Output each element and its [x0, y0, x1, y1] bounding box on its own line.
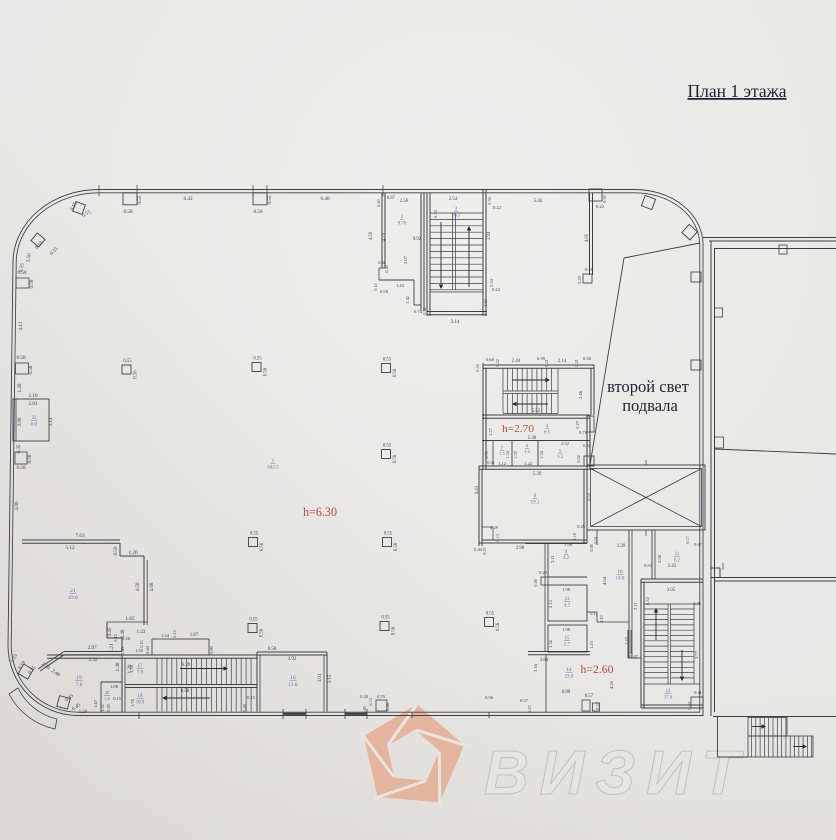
- svg-text:0.20: 0.20: [539, 570, 548, 575]
- svg-text:0.49: 0.49: [106, 704, 111, 711]
- svg-text:0.57: 0.57: [595, 701, 600, 709]
- svg-text:0.55: 0.55: [123, 359, 132, 364]
- svg-text:4.79: 4.79: [382, 232, 387, 241]
- svg-text:0.55: 0.55: [249, 618, 258, 623]
- svg-text:2.15: 2.15: [548, 599, 553, 608]
- svg-text:3.14: 3.14: [451, 320, 460, 325]
- svg-text:0.50: 0.50: [602, 194, 607, 202]
- svg-text:2.7: 2.7: [564, 642, 571, 647]
- svg-text:0.87: 0.87: [387, 196, 396, 201]
- svg-text:0.58: 0.58: [27, 454, 33, 463]
- svg-text:1.48: 1.48: [115, 662, 121, 671]
- svg-text:0.58: 0.58: [253, 209, 262, 215]
- svg-text:1.22: 1.22: [624, 637, 629, 645]
- svg-text:1.33: 1.33: [100, 704, 105, 711]
- svg-text:h=2.60: h=2.60: [581, 664, 614, 676]
- svg-text:0.56: 0.56: [485, 695, 494, 700]
- svg-text:0.17: 0.17: [685, 535, 690, 543]
- svg-text:0.13: 0.13: [495, 534, 500, 542]
- svg-text:0.81: 0.81: [644, 563, 653, 568]
- svg-text:43.6: 43.6: [68, 595, 78, 601]
- svg-text:2.14: 2.14: [558, 359, 567, 364]
- svg-text:0.56: 0.56: [496, 622, 501, 631]
- svg-text:0.50: 0.50: [475, 363, 480, 371]
- svg-text:2.11: 2.11: [633, 601, 638, 610]
- svg-text:4.06: 4.06: [14, 501, 20, 510]
- svg-text:1.34: 1.34: [161, 633, 170, 638]
- svg-text:0.54: 0.54: [489, 278, 494, 286]
- svg-text:1.42: 1.42: [405, 296, 410, 304]
- svg-text:23.0: 23.0: [565, 675, 574, 680]
- svg-text:0.27: 0.27: [575, 420, 580, 428]
- svg-text:0.34: 0.34: [583, 443, 591, 448]
- svg-text:1.67: 1.67: [190, 633, 199, 638]
- svg-text:5.52: 5.52: [532, 409, 541, 414]
- svg-text:0.40: 0.40: [693, 601, 701, 606]
- svg-text:0.15: 0.15: [113, 696, 120, 701]
- svg-text:0.22: 0.22: [493, 205, 502, 210]
- svg-text:0.50: 0.50: [113, 546, 119, 555]
- svg-text:0.52: 0.52: [576, 455, 581, 463]
- svg-text:1.43: 1.43: [396, 283, 405, 288]
- svg-text:0.40: 0.40: [384, 265, 389, 273]
- svg-text:4.50: 4.50: [135, 582, 141, 591]
- svg-text:3.92: 3.92: [288, 657, 297, 662]
- svg-text:0.80: 0.80: [562, 690, 571, 695]
- svg-text:0.18: 0.18: [572, 533, 577, 541]
- svg-text:5.42: 5.42: [534, 199, 543, 204]
- svg-text:0.55: 0.55: [253, 357, 262, 362]
- svg-text:1.20: 1.20: [79, 710, 88, 715]
- svg-text:0.63: 0.63: [376, 198, 381, 206]
- svg-text:0.55: 0.55: [377, 694, 386, 699]
- svg-text:3.15: 3.15: [327, 674, 333, 683]
- svg-text:2.98: 2.98: [516, 546, 525, 551]
- svg-text:1.47: 1.47: [93, 699, 98, 708]
- svg-text:2.01: 2.01: [28, 401, 37, 407]
- svg-text:подвала: подвала: [622, 396, 678, 415]
- svg-text:0.55: 0.55: [486, 612, 495, 617]
- svg-text:1.39: 1.39: [17, 383, 23, 392]
- svg-text:0.72: 0.72: [484, 451, 489, 459]
- svg-text:0.55: 0.55: [384, 532, 393, 537]
- svg-text:0.55: 0.55: [381, 616, 390, 621]
- svg-text:0.10: 0.10: [599, 615, 604, 622]
- svg-text:0.36: 0.36: [583, 356, 592, 361]
- svg-text:1.23: 1.23: [589, 640, 594, 649]
- svg-text:0.15: 0.15: [373, 283, 378, 290]
- svg-text:1.20: 1.20: [128, 550, 137, 556]
- svg-text:0.58: 0.58: [28, 365, 34, 374]
- svg-text:1.98: 1.98: [562, 627, 571, 632]
- svg-text:1.70: 1.70: [130, 698, 135, 707]
- svg-text:0.55: 0.55: [250, 532, 259, 537]
- svg-text:0.60: 0.60: [486, 357, 495, 362]
- svg-text:План 1 этажа: План 1 этажа: [687, 81, 786, 101]
- svg-text:ВИЗИТ: ВИЗИТ: [484, 739, 751, 808]
- svg-text:0.56: 0.56: [260, 628, 265, 637]
- svg-text:4.05: 4.05: [585, 233, 590, 242]
- svg-text:2.96: 2.96: [17, 417, 23, 426]
- svg-text:0.29: 0.29: [490, 525, 499, 530]
- svg-text:0.25: 0.25: [577, 524, 586, 529]
- svg-text:0.22: 0.22: [492, 287, 501, 292]
- svg-text:19.1: 19.1: [531, 501, 540, 506]
- svg-text:3.16: 3.16: [533, 663, 538, 671]
- svg-text:0.11: 0.11: [590, 611, 598, 616]
- svg-text:1.6: 1.6: [524, 449, 530, 454]
- svg-text:2.07: 2.07: [403, 255, 408, 264]
- svg-text:6.58: 6.58: [268, 647, 277, 652]
- svg-text:11.8: 11.8: [288, 682, 298, 688]
- svg-text:0.32: 0.32: [422, 307, 427, 314]
- svg-text:4.11: 4.11: [18, 321, 24, 330]
- svg-text:0.40: 0.40: [378, 260, 386, 265]
- svg-text:0.35: 0.35: [16, 444, 22, 453]
- svg-text:1.36: 1.36: [548, 639, 553, 648]
- svg-text:7.63: 7.63: [75, 533, 84, 539]
- svg-text:3.01: 3.01: [317, 673, 323, 682]
- svg-text:3.88: 3.88: [540, 658, 549, 663]
- svg-text:3.2: 3.2: [557, 454, 563, 459]
- svg-text:0.21: 0.21: [574, 359, 579, 367]
- svg-text:0.67: 0.67: [694, 542, 702, 547]
- svg-text:1.65: 1.65: [125, 616, 134, 622]
- svg-text:0.27: 0.27: [482, 547, 487, 554]
- svg-text:0.55: 0.55: [137, 195, 143, 204]
- svg-text:0.56: 0.56: [134, 370, 139, 379]
- svg-text:5.12: 5.12: [65, 545, 74, 551]
- svg-text:1.12: 1.12: [498, 461, 506, 466]
- svg-text:3.94: 3.94: [487, 231, 492, 240]
- svg-text:9.70: 9.70: [398, 221, 407, 226]
- svg-text:0.21: 0.21: [544, 359, 549, 367]
- svg-text:1.20: 1.20: [129, 664, 134, 673]
- svg-text:6.5: 6.5: [544, 430, 551, 435]
- svg-text:1.27: 1.27: [488, 427, 493, 436]
- svg-text:3.39: 3.39: [617, 544, 626, 549]
- svg-text:1.35: 1.35: [513, 451, 518, 459]
- svg-text:0.55: 0.55: [267, 195, 273, 204]
- svg-text:9.43: 9.43: [475, 485, 480, 494]
- svg-text:0.48: 0.48: [120, 646, 125, 654]
- svg-text:6.32: 6.32: [433, 209, 438, 218]
- svg-text:0.49: 0.49: [242, 703, 247, 711]
- svg-text:6.39: 6.39: [182, 663, 191, 668]
- svg-text:1.22: 1.22: [524, 461, 532, 466]
- svg-text:0.56: 0.56: [393, 368, 398, 377]
- svg-text:1.34: 1.34: [505, 450, 510, 458]
- svg-text:3.55: 3.55: [587, 492, 592, 501]
- svg-text:2.97: 2.97: [87, 645, 96, 651]
- svg-text:0.57: 0.57: [520, 698, 529, 703]
- svg-text:1.98: 1.98: [562, 587, 571, 592]
- svg-text:6.0: 6.0: [31, 422, 38, 427]
- svg-text:2.43: 2.43: [668, 564, 677, 569]
- svg-text:0.92: 0.92: [413, 237, 422, 242]
- svg-text:0.57: 0.57: [585, 694, 594, 699]
- svg-text:0.22: 0.22: [495, 359, 500, 367]
- svg-text:2.46: 2.46: [578, 390, 583, 399]
- svg-text:2.11: 2.11: [550, 555, 555, 563]
- svg-text:0.56: 0.56: [264, 367, 269, 376]
- svg-text:5.39: 5.39: [533, 472, 542, 477]
- svg-text:0.51: 0.51: [593, 536, 598, 543]
- svg-text:6.48: 6.48: [320, 196, 329, 202]
- svg-text:2.10: 2.10: [28, 393, 37, 399]
- svg-text:6.2: 6.2: [674, 558, 681, 563]
- svg-text:0.15: 0.15: [247, 695, 256, 700]
- svg-text:3.14: 3.14: [48, 417, 54, 426]
- svg-text:0.57: 0.57: [527, 704, 532, 712]
- svg-text:2.52: 2.52: [561, 441, 570, 446]
- svg-text:1.08: 1.08: [110, 684, 119, 689]
- svg-text:0.50: 0.50: [487, 196, 492, 204]
- svg-text:0.41: 0.41: [694, 690, 702, 695]
- svg-text:3.05: 3.05: [667, 588, 676, 593]
- svg-text:0.56: 0.56: [385, 702, 390, 710]
- svg-text:2.56: 2.56: [400, 199, 409, 204]
- svg-text:0.55: 0.55: [383, 358, 392, 363]
- svg-text:0.08: 0.08: [589, 544, 594, 551]
- svg-text:10.9: 10.9: [136, 700, 145, 705]
- svg-text:7.6: 7.6: [76, 682, 83, 688]
- svg-text:0.26: 0.26: [122, 636, 131, 641]
- svg-text:0.47: 0.47: [630, 654, 639, 659]
- svg-text:1.98: 1.98: [564, 542, 573, 547]
- svg-text:5.30: 5.30: [528, 436, 537, 441]
- svg-text:0.15: 0.15: [139, 640, 144, 647]
- svg-text:4.50: 4.50: [369, 231, 374, 240]
- svg-text:6.42: 6.42: [183, 196, 192, 202]
- svg-text:1.34: 1.34: [539, 450, 544, 458]
- svg-text:1.63: 1.63: [483, 298, 488, 306]
- svg-text:0.15: 0.15: [368, 698, 373, 706]
- svg-text:0.40: 0.40: [362, 706, 367, 714]
- svg-text:4.26: 4.26: [609, 680, 614, 689]
- svg-text:0.58: 0.58: [16, 355, 25, 361]
- svg-text:0.59: 0.59: [577, 275, 582, 283]
- svg-text:0.58: 0.58: [380, 289, 389, 294]
- svg-text:0.64: 0.64: [145, 645, 150, 653]
- svg-text:0.58: 0.58: [17, 270, 26, 276]
- svg-text:0.58: 0.58: [16, 465, 25, 471]
- svg-text:17.6: 17.6: [664, 695, 673, 700]
- svg-text:3.77: 3.77: [694, 650, 699, 659]
- svg-text:2.54: 2.54: [449, 197, 458, 202]
- svg-text:6.32: 6.32: [645, 596, 650, 605]
- svg-text:0.56: 0.56: [394, 542, 399, 551]
- svg-text:0.55: 0.55: [383, 444, 392, 449]
- svg-text:h=2.70: h=2.70: [502, 424, 534, 435]
- svg-text:0.56: 0.56: [392, 626, 397, 635]
- svg-text:7.9: 7.9: [137, 670, 144, 675]
- svg-text:14.0: 14.0: [616, 577, 625, 582]
- svg-text:1.4: 1.4: [104, 696, 110, 701]
- svg-text:2.58: 2.58: [657, 554, 662, 563]
- svg-text:0.31: 0.31: [487, 460, 495, 465]
- svg-text:4.64: 4.64: [602, 576, 607, 585]
- svg-text:0.12: 0.12: [113, 634, 118, 642]
- svg-text:0.56: 0.56: [260, 542, 265, 551]
- svg-text:0.26: 0.26: [585, 267, 594, 272]
- svg-text:6.58: 6.58: [181, 689, 190, 694]
- svg-text:4.2: 4.2: [563, 556, 570, 561]
- svg-text:4.3: 4.3: [564, 603, 571, 608]
- svg-text:0.80: 0.80: [209, 645, 214, 653]
- svg-text:1.22: 1.22: [136, 629, 145, 635]
- svg-text:0.26: 0.26: [533, 578, 538, 586]
- svg-text:0.56: 0.56: [393, 454, 398, 463]
- svg-text:642.5: 642.5: [267, 466, 279, 471]
- svg-text:2.44: 2.44: [512, 359, 521, 364]
- svg-text:0.22: 0.22: [596, 204, 605, 209]
- svg-text:4.68: 4.68: [149, 582, 155, 591]
- svg-text:0.58: 0.58: [29, 279, 35, 288]
- svg-text:второй свет: второй свет: [607, 377, 689, 396]
- svg-text:0.15: 0.15: [172, 629, 177, 637]
- svg-text:16.1: 16.1: [452, 213, 461, 218]
- svg-text:0.78: 0.78: [579, 430, 588, 435]
- svg-text:1.35: 1.35: [135, 648, 144, 653]
- svg-text:h=6.30: h=6.30: [303, 504, 337, 519]
- svg-text:0.58: 0.58: [123, 209, 132, 215]
